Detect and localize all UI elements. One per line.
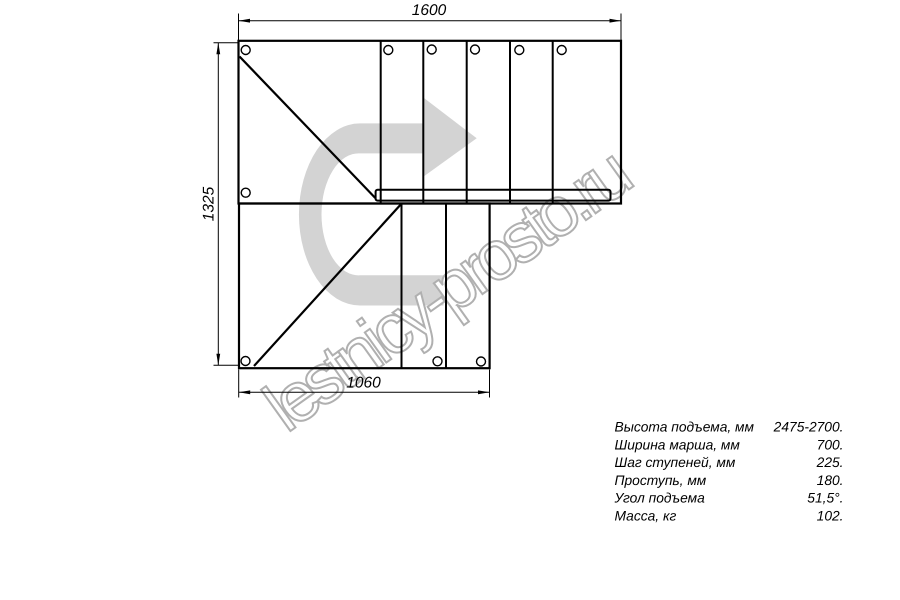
svg-text:Ширина марша, мм: Ширина марша, мм: [615, 437, 741, 452]
svg-text:1600: 1600: [412, 2, 447, 19]
svg-text:1060: 1060: [346, 375, 381, 392]
svg-text:Проступь, мм: Проступь, мм: [615, 473, 707, 488]
svg-text:Угол подъема: Угол подъема: [614, 491, 706, 506]
svg-text:51,5°.: 51,5°.: [807, 491, 843, 506]
svg-text:2475-2700.: 2475-2700.: [773, 420, 844, 435]
svg-text:Шаг ступеней, мм: Шаг ступеней, мм: [615, 455, 736, 470]
svg-text:Высота подъема, мм: Высота подъема, мм: [615, 420, 755, 435]
svg-text:225.: 225.: [816, 455, 844, 470]
svg-text:180.: 180.: [817, 473, 844, 488]
svg-text:Масса, кг: Масса, кг: [615, 509, 677, 524]
svg-text:700.: 700.: [817, 437, 844, 452]
svg-text:102.: 102.: [817, 509, 844, 524]
svg-text:1325: 1325: [200, 186, 217, 221]
